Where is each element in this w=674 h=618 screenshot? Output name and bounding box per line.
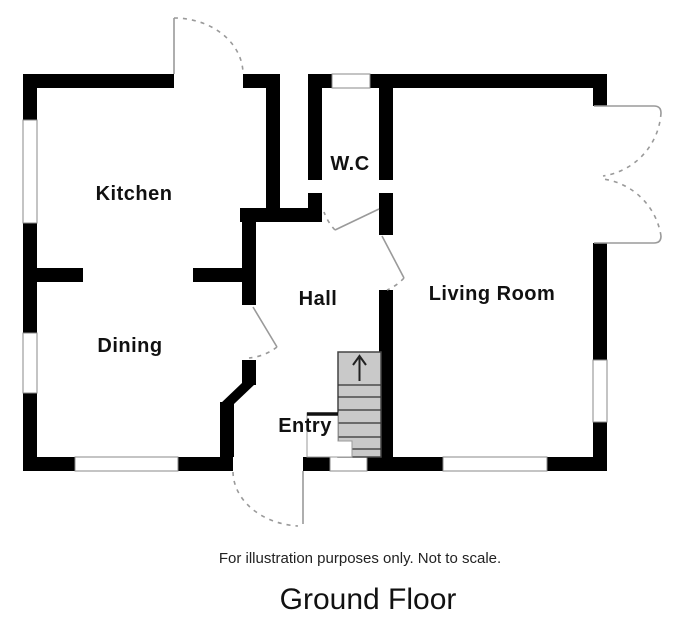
- wc-door: [324, 209, 379, 230]
- hall-living-wall-upper: [379, 193, 393, 235]
- front-door: [233, 471, 303, 526]
- door-leaf-bottom: [594, 236, 661, 243]
- french-doors: [594, 106, 661, 243]
- door-leaf: [382, 236, 404, 278]
- door-leaf: [253, 307, 277, 347]
- door-swing-arc: [324, 212, 335, 230]
- dining-hall-door: [249, 307, 277, 358]
- floor-title: Ground Floor: [280, 583, 457, 616]
- living-room-door: [382, 236, 404, 290]
- hall-dining-wall-jog: [220, 383, 256, 404]
- entry-side-wall: [220, 402, 234, 457]
- floor-plan-canvas: Kitchen Dining W.C Hall Living Room Entr…: [0, 0, 674, 618]
- wc-top-window: [332, 74, 370, 88]
- room-labels: Kitchen Dining W.C Hall Living Room Entr…: [96, 153, 556, 437]
- door-swing-arc: [387, 278, 404, 290]
- dining-label: Dining: [97, 335, 162, 357]
- right-wall-upper: [593, 88, 607, 106]
- kitchen-left-window: [23, 120, 37, 223]
- door-swing-arc-bottom: [603, 179, 661, 236]
- disclaimer-text: For illustration purposes only. Not to s…: [219, 550, 501, 567]
- door-swing-arc-top: [603, 113, 661, 176]
- entry-bottom-window: [330, 457, 367, 471]
- top-wall-mid: [243, 74, 280, 88]
- door-swing-arc: [174, 18, 243, 74]
- wc-right-wall: [379, 88, 393, 180]
- hall-label: Hall: [299, 288, 338, 310]
- wc-label: W.C: [330, 153, 369, 175]
- footer: For illustration purposes only. Not to s…: [219, 550, 501, 616]
- living-room-label: Living Room: [429, 283, 556, 305]
- entry-label: Entry: [278, 415, 332, 437]
- kitchen-door: [174, 18, 243, 74]
- door-swing-arc: [249, 347, 277, 358]
- dining-bottom-window: [75, 457, 178, 471]
- door-leaf: [335, 209, 379, 230]
- kitchen-dining-wall-left: [37, 268, 83, 282]
- staircase: [307, 352, 381, 457]
- floor-plan: Kitchen Dining W.C Hall Living Room Entr…: [0, 0, 674, 618]
- kitchen-hall-wall: [266, 88, 280, 208]
- living-bottom-window: [443, 457, 547, 471]
- hall-dining-wall-lower: [242, 360, 256, 385]
- door-leaf-top: [594, 106, 661, 113]
- wc-left-wall-stub: [308, 193, 322, 222]
- hall-dining-wall-upper: [242, 222, 256, 305]
- wc-left-wall: [308, 88, 322, 180]
- kitchen-dining-wall-right: [193, 268, 243, 282]
- dining-left-window: [23, 333, 37, 393]
- top-wall-living: [370, 74, 607, 88]
- door-swing-arc: [233, 472, 298, 526]
- kitchen-label: Kitchen: [96, 183, 173, 205]
- right-wall-lower: [593, 243, 607, 471]
- living-right-window: [593, 360, 607, 422]
- top-wall-kitchen: [23, 74, 174, 88]
- top-wall-wc-left: [308, 74, 332, 88]
